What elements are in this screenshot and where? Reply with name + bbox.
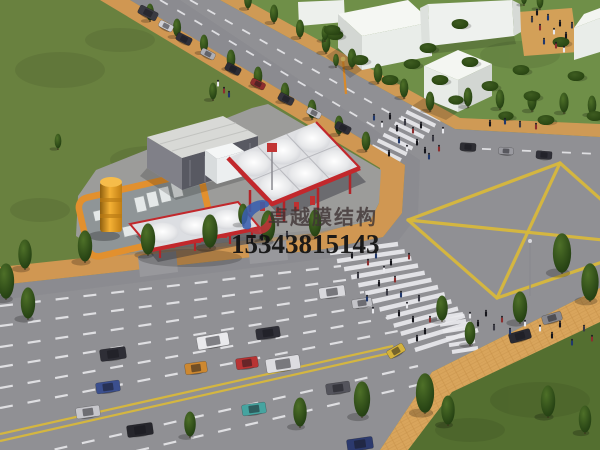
pedestrian xyxy=(429,316,431,323)
pedestrian xyxy=(418,295,420,302)
pedestrian xyxy=(555,42,557,49)
pedestrian xyxy=(424,147,426,154)
pedestrian xyxy=(539,24,541,31)
pedestrian xyxy=(428,153,430,160)
pedestrian xyxy=(389,113,391,120)
pedestrian xyxy=(372,307,374,314)
pedestrian xyxy=(366,295,368,302)
pedestrian xyxy=(509,328,511,335)
pedestrian xyxy=(388,150,390,157)
pedestrian xyxy=(432,135,434,142)
pedestrian xyxy=(394,276,396,283)
pedestrian xyxy=(357,272,359,279)
pedestrian xyxy=(390,259,392,266)
pedestrian xyxy=(398,310,400,317)
pedestrian xyxy=(519,121,521,128)
pedestrian xyxy=(367,259,369,266)
pedestrian xyxy=(420,122,422,129)
pedestrian xyxy=(563,46,565,53)
pedestrian xyxy=(536,9,538,16)
pedestrian xyxy=(524,320,526,327)
pedestrian xyxy=(571,22,573,29)
tank-top xyxy=(100,177,122,187)
pedestrian xyxy=(501,316,503,323)
scene-svg: 卓越膜结构 15343815143 xyxy=(0,0,600,450)
pedestrian xyxy=(547,14,549,21)
pedestrian xyxy=(378,280,380,287)
tank-shadow xyxy=(88,231,120,241)
pedestrian xyxy=(551,332,553,339)
pedestrian xyxy=(559,321,561,328)
pedestrian xyxy=(406,302,408,309)
tank-body xyxy=(100,182,122,232)
pedestrian xyxy=(223,87,225,94)
pedestrian xyxy=(504,118,506,125)
pedestrian xyxy=(531,16,533,23)
pedestrian xyxy=(381,121,383,128)
pedestrian xyxy=(591,335,593,342)
rendering-canvas: 卓越膜结构 15343815143 xyxy=(0,0,600,450)
pedestrian xyxy=(539,325,541,332)
pedestrian xyxy=(398,137,400,144)
pedestrian xyxy=(383,266,385,273)
pedestrian xyxy=(424,328,426,335)
company-name-text: 卓越膜结构 xyxy=(268,205,378,229)
pedestrian xyxy=(400,291,402,298)
pedestrian xyxy=(583,325,585,332)
pedestrian xyxy=(217,80,219,87)
pedestrian xyxy=(553,28,555,35)
pedestrian xyxy=(404,119,406,126)
pedestrian xyxy=(559,20,561,27)
pedestrian xyxy=(412,127,414,134)
pedestrian xyxy=(412,316,414,323)
pedestrian xyxy=(489,120,491,127)
watermark: 卓越膜结构 15343815143 xyxy=(231,200,380,259)
pedestrian xyxy=(477,320,479,327)
pedestrian xyxy=(442,127,444,134)
pedestrian xyxy=(535,123,537,130)
pedestrian xyxy=(373,114,375,121)
building-0 xyxy=(298,0,345,26)
pedestrian xyxy=(493,324,495,331)
lamp-head-2 xyxy=(528,239,532,243)
pedestrian xyxy=(438,145,440,152)
pedestrian xyxy=(416,335,418,342)
pedestrian xyxy=(408,253,410,260)
pedestrian xyxy=(386,289,388,296)
pedestrian xyxy=(543,38,545,45)
price-sign xyxy=(267,143,277,152)
pedestrian xyxy=(396,125,398,132)
pedestrian xyxy=(406,145,408,152)
pedestrian xyxy=(228,91,230,98)
pedestrian xyxy=(571,339,573,346)
pedestrian xyxy=(565,32,567,39)
pedestrian xyxy=(485,310,487,317)
pedestrian xyxy=(469,312,471,319)
pedestrian xyxy=(416,139,418,146)
phone-number-text: 15343815143 xyxy=(231,229,380,259)
